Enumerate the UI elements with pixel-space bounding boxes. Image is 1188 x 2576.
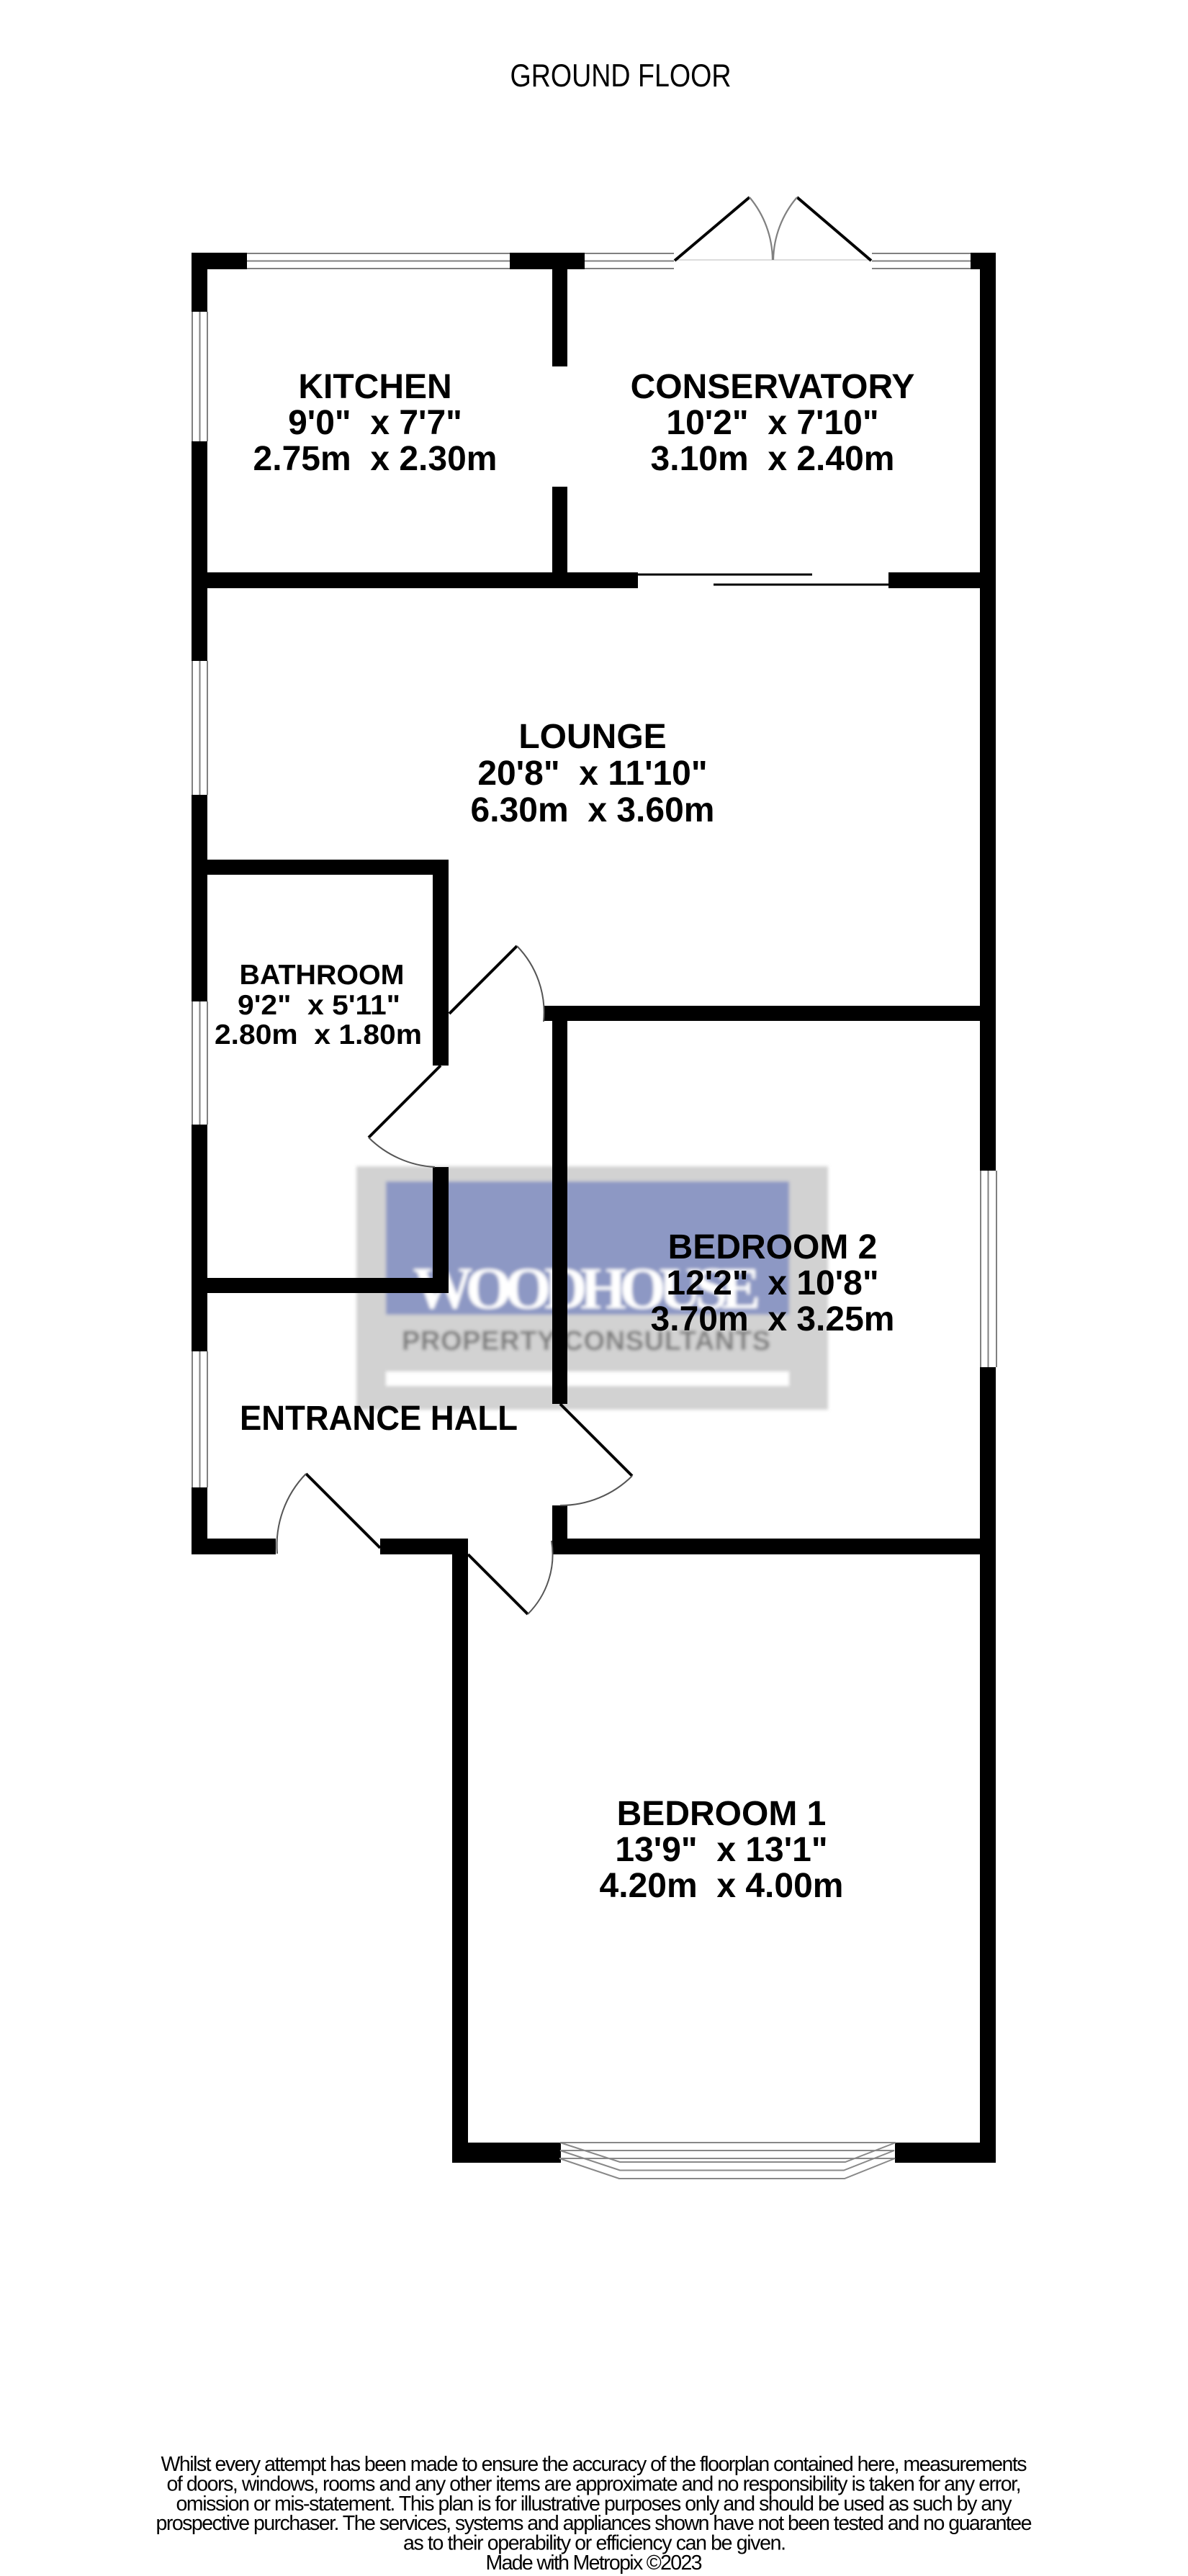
svg-text:KITCHEN: KITCHEN bbox=[298, 368, 451, 406]
svg-text:CONSERVATORY: CONSERVATORY bbox=[631, 368, 915, 406]
svg-text:GROUND FLOOR: GROUND FLOOR bbox=[510, 58, 732, 94]
svg-text:3.10m x 2.40m: 3.10m x 2.40m bbox=[651, 440, 895, 478]
svg-text:9'0" x 7'7": 9'0" x 7'7" bbox=[288, 404, 462, 442]
svg-text:3.70m x 3.25m: 3.70m x 3.25m bbox=[651, 1300, 895, 1338]
svg-text:4.20m x 4.00m: 4.20m x 4.00m bbox=[600, 1867, 844, 1905]
svg-text:BEDROOM 2: BEDROOM 2 bbox=[668, 1228, 878, 1266]
svg-text:6.30m x 3.60m: 6.30m x 3.60m bbox=[471, 791, 715, 829]
svg-text:ENTRANCE HALL: ENTRANCE HALL bbox=[240, 1400, 518, 1438]
svg-text:BEDROOM 1: BEDROOM 1 bbox=[617, 1795, 827, 1833]
svg-text:LOUNGE: LOUNGE bbox=[518, 718, 666, 756]
svg-text:BATHROOM: BATHROOM bbox=[240, 960, 405, 991]
svg-text:9'2" x 5'11": 9'2" x 5'11" bbox=[238, 990, 400, 1021]
svg-text:2.75m x 2.30m: 2.75m x 2.30m bbox=[253, 440, 498, 478]
svg-text:10'2" x 7'10": 10'2" x 7'10" bbox=[666, 404, 878, 442]
svg-text:2.80m x 1.80m: 2.80m x 1.80m bbox=[215, 1019, 422, 1050]
svg-text:20'8" x 11'10": 20'8" x 11'10" bbox=[477, 755, 707, 793]
svg-text:13'9" x 13'1": 13'9" x 13'1" bbox=[615, 1831, 827, 1869]
svg-text:Made with Metropix ©2023: Made with Metropix ©2023 bbox=[486, 2552, 703, 2575]
svg-text:12'2" x 10'8": 12'2" x 10'8" bbox=[666, 1264, 878, 1302]
